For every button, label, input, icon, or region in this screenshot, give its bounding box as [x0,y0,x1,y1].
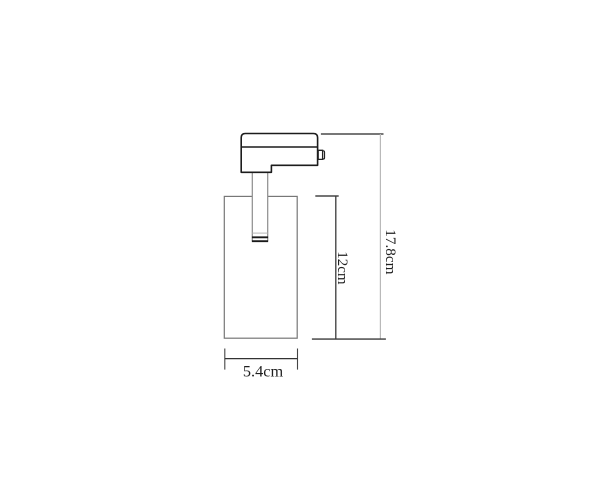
svg-text:12cm: 12cm [334,251,350,285]
svg-text:17.8cm: 17.8cm [382,229,399,274]
svg-text:5.4cm: 5.4cm [243,361,284,380]
